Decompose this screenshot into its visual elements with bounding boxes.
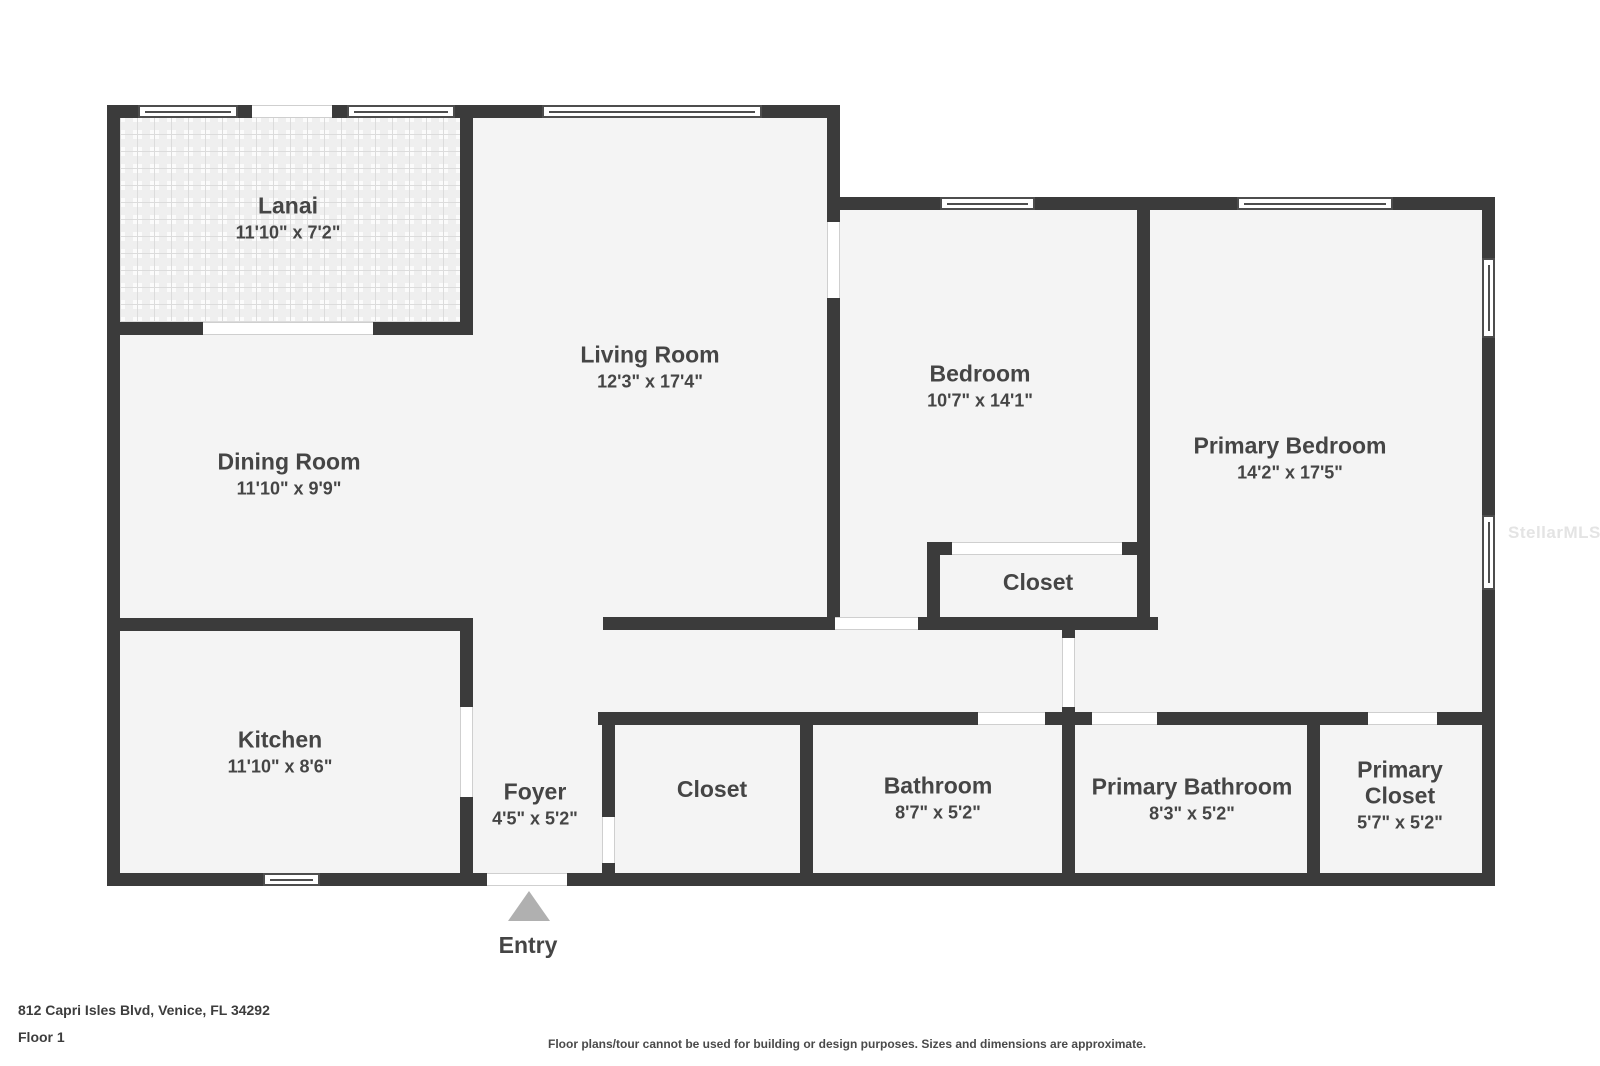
room-dims: 8'7" x 5'2" bbox=[884, 802, 993, 822]
floor-number: Floor 1 bbox=[18, 1029, 65, 1045]
wall bbox=[1137, 197, 1150, 630]
hall-closet-door-opening bbox=[602, 817, 615, 863]
stellar-mls-watermark: StellarMLS bbox=[1508, 523, 1600, 543]
room-label-kitchen: Kitchen 11'10" x 8'6" bbox=[228, 728, 333, 777]
kitchen-door-opening bbox=[460, 707, 473, 797]
room-name: Primary Bathroom bbox=[1092, 775, 1293, 801]
room-label-bathroom: Bathroom 8'7" x 5'2" bbox=[884, 774, 993, 823]
room-name: Bedroom bbox=[927, 362, 1033, 388]
wall bbox=[800, 725, 813, 873]
room-name: Lanai bbox=[236, 194, 341, 220]
room-label-bedroom-closet: Closet bbox=[1003, 570, 1073, 596]
room-label-dining-room: Dining Room 11'10" x 9'9" bbox=[217, 450, 360, 499]
window bbox=[138, 105, 238, 118]
window bbox=[542, 105, 762, 118]
primary-bathroom-door-opening bbox=[1092, 712, 1157, 725]
room-name: Bathroom bbox=[884, 774, 993, 800]
bedroom-closet-door-opening bbox=[952, 542, 1122, 555]
screen-opening bbox=[252, 105, 332, 118]
bedroom-living-door-opening bbox=[827, 222, 840, 298]
wall bbox=[460, 105, 473, 335]
bathroom-door-opening bbox=[978, 712, 1045, 725]
property-address: 812 Capri Isles Blvd, Venice, FL 34292 bbox=[18, 1002, 270, 1018]
bedroom-door-opening bbox=[835, 617, 918, 630]
room-name: Foyer bbox=[492, 780, 578, 806]
room-name: Closet bbox=[1003, 570, 1073, 596]
window bbox=[1482, 258, 1495, 338]
room-name: Primary Bedroom bbox=[1193, 434, 1386, 460]
window bbox=[940, 197, 1035, 210]
entry-arrow-icon bbox=[508, 891, 550, 921]
primary-bedroom-door-opening bbox=[1062, 638, 1075, 707]
room-label-primary-bedroom: Primary Bedroom 14'2" x 17'5" bbox=[1193, 434, 1386, 483]
floor-plan-page: Lanai 11'10" x 7'2" Living Room 12'3" x … bbox=[0, 0, 1600, 1066]
entry-label: Entry bbox=[499, 932, 558, 959]
room-dims: 8'3" x 5'2" bbox=[1092, 803, 1293, 823]
room-dims: 10'7" x 14'1" bbox=[927, 390, 1033, 410]
window bbox=[1482, 515, 1495, 590]
room-dims: 14'2" x 17'5" bbox=[1193, 462, 1386, 482]
room-dims: 5'7" x 5'2" bbox=[1325, 812, 1475, 832]
wall bbox=[107, 618, 472, 631]
window bbox=[1237, 197, 1393, 210]
room-label-living-room: Living Room 12'3" x 17'4" bbox=[580, 343, 719, 392]
room-dims: 4'5" x 5'2" bbox=[492, 808, 578, 828]
wall bbox=[827, 105, 840, 630]
room-name: Closet bbox=[677, 777, 747, 803]
room-dims: 11'10" x 8'6" bbox=[228, 756, 333, 776]
room-name: Living Room bbox=[580, 343, 719, 369]
wall bbox=[827, 197, 1495, 210]
wall bbox=[1307, 725, 1320, 873]
room-label-primary-closet: Primary Closet 5'7" x 5'2" bbox=[1325, 758, 1475, 833]
room-label-bedroom: Bedroom 10'7" x 14'1" bbox=[927, 362, 1033, 411]
room-dims: 11'10" x 9'9" bbox=[217, 478, 360, 498]
room-dims: 12'3" x 17'4" bbox=[580, 371, 719, 391]
wall bbox=[107, 105, 120, 886]
disclaimer-text: Floor plans/tour cannot be used for buil… bbox=[548, 1037, 1146, 1051]
window bbox=[347, 105, 455, 118]
entry-door-opening bbox=[487, 873, 567, 886]
primary-closet-door-opening bbox=[1368, 712, 1437, 725]
room-name: Dining Room bbox=[217, 450, 360, 476]
room-name: Primary Closet bbox=[1325, 758, 1475, 810]
room-dims: 11'10" x 7'2" bbox=[236, 222, 341, 242]
room-label-foyer: Foyer 4'5" x 5'2" bbox=[492, 780, 578, 829]
room-name: Kitchen bbox=[228, 728, 333, 754]
window bbox=[263, 873, 320, 886]
room-label-hall-closet: Closet bbox=[677, 777, 747, 803]
room-label-lanai: Lanai 11'10" x 7'2" bbox=[236, 194, 341, 243]
lanai-slider-opening bbox=[203, 322, 373, 335]
room-label-primary-bathroom: Primary Bathroom 8'3" x 5'2" bbox=[1092, 775, 1293, 824]
